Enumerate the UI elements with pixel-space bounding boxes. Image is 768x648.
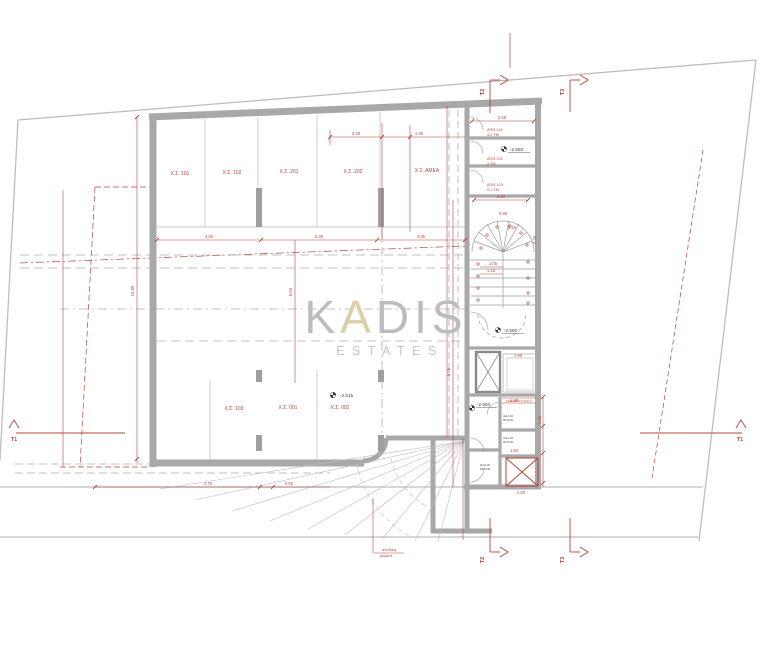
- section-label-t3-top: Τ3: [560, 89, 566, 95]
- dim-2-40: 2.40: [352, 131, 361, 136]
- dim-0-85: 0.85: [499, 211, 508, 216]
- section-label-t2-top: Τ2: [480, 89, 486, 95]
- elevator-shaft: [476, 352, 536, 392]
- dim-1-10: 1.10: [487, 268, 496, 273]
- dim-15-80: 15.80: [130, 285, 135, 296]
- dim-0-10: 0.10: [508, 225, 517, 230]
- section-label-t1-left: Τ1: [11, 437, 17, 443]
- axis-diagonal: [20, 246, 465, 263]
- setback-lines: [20, 33, 703, 478]
- floor-plan-page: Τ2 Τ3 Τ2 Τ3 Τ1 Τ1 2.40 1.30 4.80 5.35 4.…: [0, 0, 768, 648]
- parking-space-amea: Χ.Σ. ΑΜΕΑ: [415, 168, 440, 174]
- storage-103-area: 5.1 ΤΜ: [487, 188, 499, 192]
- section-label-t2-bottom: Τ2: [480, 557, 486, 563]
- dim-0-60: 0.60: [285, 481, 294, 486]
- door-tag-2-size: 80Χ240: [503, 440, 514, 444]
- dim-0-25: 0.25: [532, 235, 537, 244]
- setback-right: [652, 150, 703, 478]
- parking-space-001: Χ.Σ. 001: [279, 405, 298, 411]
- parking-labels: Χ.Σ. 101 Χ.Σ. 102 Χ.Σ. 201 Χ.Σ. 202 Χ.Σ.…: [171, 168, 440, 412]
- storage-101-name: ΑΠΘ-101: [487, 128, 503, 132]
- dim-5-35: 5.35: [315, 234, 324, 239]
- ramp-label-line2: ράμπα: [380, 553, 393, 558]
- watermark-logo: KADIS ESTATES: [304, 291, 467, 358]
- boundary-left: [0, 120, 18, 460]
- dim-2-65: 2.65: [498, 115, 507, 120]
- dim-1-50-b: 1.50: [517, 490, 526, 495]
- storage-102-area: 4 ΤΜ: [487, 162, 496, 166]
- floor-plan-drawing: Τ2 Τ3 Τ2 Τ3 Τ1 Τ1 2.40 1.30 4.80 5.35 4.…: [0, 0, 768, 648]
- stair-headroom-arc: [478, 314, 526, 338]
- level-value-lobby: -2.500: [504, 328, 517, 333]
- parking-space-202: Χ.Σ. 202: [344, 169, 363, 175]
- parking-space-102: Χ.Σ. 102: [223, 170, 242, 176]
- dim-5-55: 5.55: [446, 367, 451, 376]
- stair-outer-arc: [472, 221, 534, 252]
- storage-101-area: 4.2 ΤΜ: [487, 133, 499, 137]
- ramp: [160, 441, 464, 542]
- parking-space-002: Χ.Σ. 002: [331, 405, 350, 411]
- watermark-estates: ESTATES: [336, 344, 444, 358]
- machine-room-box: [503, 354, 536, 392]
- ramp-label-line1: ανοδική: [382, 547, 396, 552]
- watermark-dis: DIS: [376, 291, 468, 343]
- staircase: [470, 221, 536, 338]
- dim-1-50-a: 1.50: [510, 448, 519, 453]
- level-marker-stair: -2.500: [501, 146, 530, 152]
- parking-space-101: Χ.Σ. 101: [171, 171, 190, 177]
- dim-1-30: 1.30: [415, 131, 424, 136]
- door-tag-1-size: 80Χ240: [503, 418, 514, 422]
- door-tags: ΘΑ2.00 80Χ240 ΘΑ2.00 80Χ240 ΘΑ2.00 80Χ24…: [480, 414, 514, 471]
- bay-lines: [157, 112, 465, 460]
- dim-1-05: 1.05: [489, 261, 498, 266]
- dim-4-80: 4.80: [205, 234, 214, 239]
- machine-room-inner: [507, 358, 533, 390]
- machine-room-label: ΜΗΧΑΝΟΣΤΑΣΙΟ: [506, 399, 533, 403]
- level-value-store: -2.500: [477, 402, 490, 407]
- parking-bays: [157, 112, 465, 460]
- dim-1-90-b: 1.90: [537, 415, 542, 424]
- parking-space-201: Χ.Σ. 201: [280, 169, 299, 175]
- dim-6-60: 6.60: [288, 287, 293, 296]
- section-label-t1-right: Τ1: [737, 437, 743, 443]
- watermark-a-accent: A: [340, 291, 376, 343]
- level-marker-store: -2.500: [469, 402, 497, 411]
- section-label-t3-bottom: Τ3: [560, 557, 566, 563]
- level-value-hall: -2.515: [340, 393, 353, 398]
- walls-internal: [467, 138, 538, 487]
- level-marker-hall: -2.515: [330, 392, 353, 398]
- watermark-kadis: KADIS: [304, 291, 467, 343]
- door-tag-3-size: 80Χ240: [480, 467, 491, 471]
- watermark-k: K: [304, 291, 340, 343]
- parking-space-103: Χ.Σ. 103: [225, 406, 244, 412]
- boundary-right: [699, 60, 756, 541]
- storage-102-name: ΑΠΘ-102: [487, 157, 503, 161]
- dim-1-90-a: 1.90: [514, 353, 523, 358]
- boundary-top: [18, 60, 756, 120]
- door-arcs: [470, 117, 500, 482]
- wall-top: [149, 101, 542, 117]
- dim-2-50: 2.50: [497, 194, 506, 199]
- setback-left: [80, 187, 95, 467]
- level-value-stair: -2.500: [510, 147, 523, 152]
- storage-103-name: ΑΠΘ-103: [487, 183, 503, 187]
- dim-4-05: 4.05: [417, 234, 426, 239]
- shaft-crossbox: [506, 458, 538, 486]
- dim-4-75: 4.75: [204, 481, 213, 486]
